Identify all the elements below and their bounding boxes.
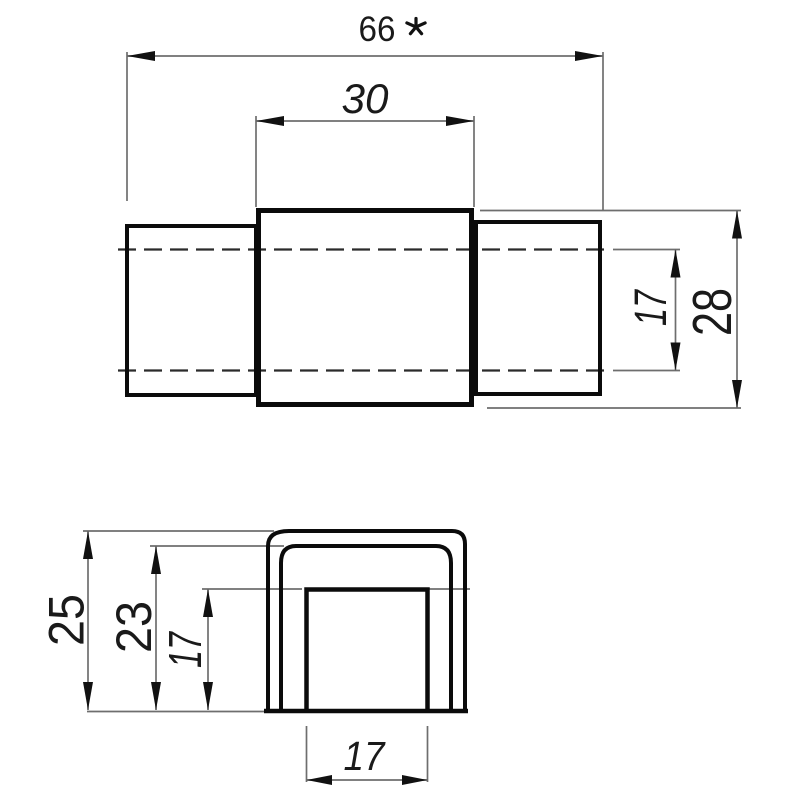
svg-text:17: 17 — [159, 631, 211, 668]
svg-text:30: 30 — [342, 75, 390, 122]
svg-text:25: 25 — [39, 594, 95, 646]
svg-text:23: 23 — [106, 601, 162, 653]
svg-text:28: 28 — [681, 288, 743, 336]
svg-text:17: 17 — [344, 733, 387, 779]
svg-text:17: 17 — [625, 289, 676, 326]
svg-text:66: 66 — [359, 9, 396, 49]
